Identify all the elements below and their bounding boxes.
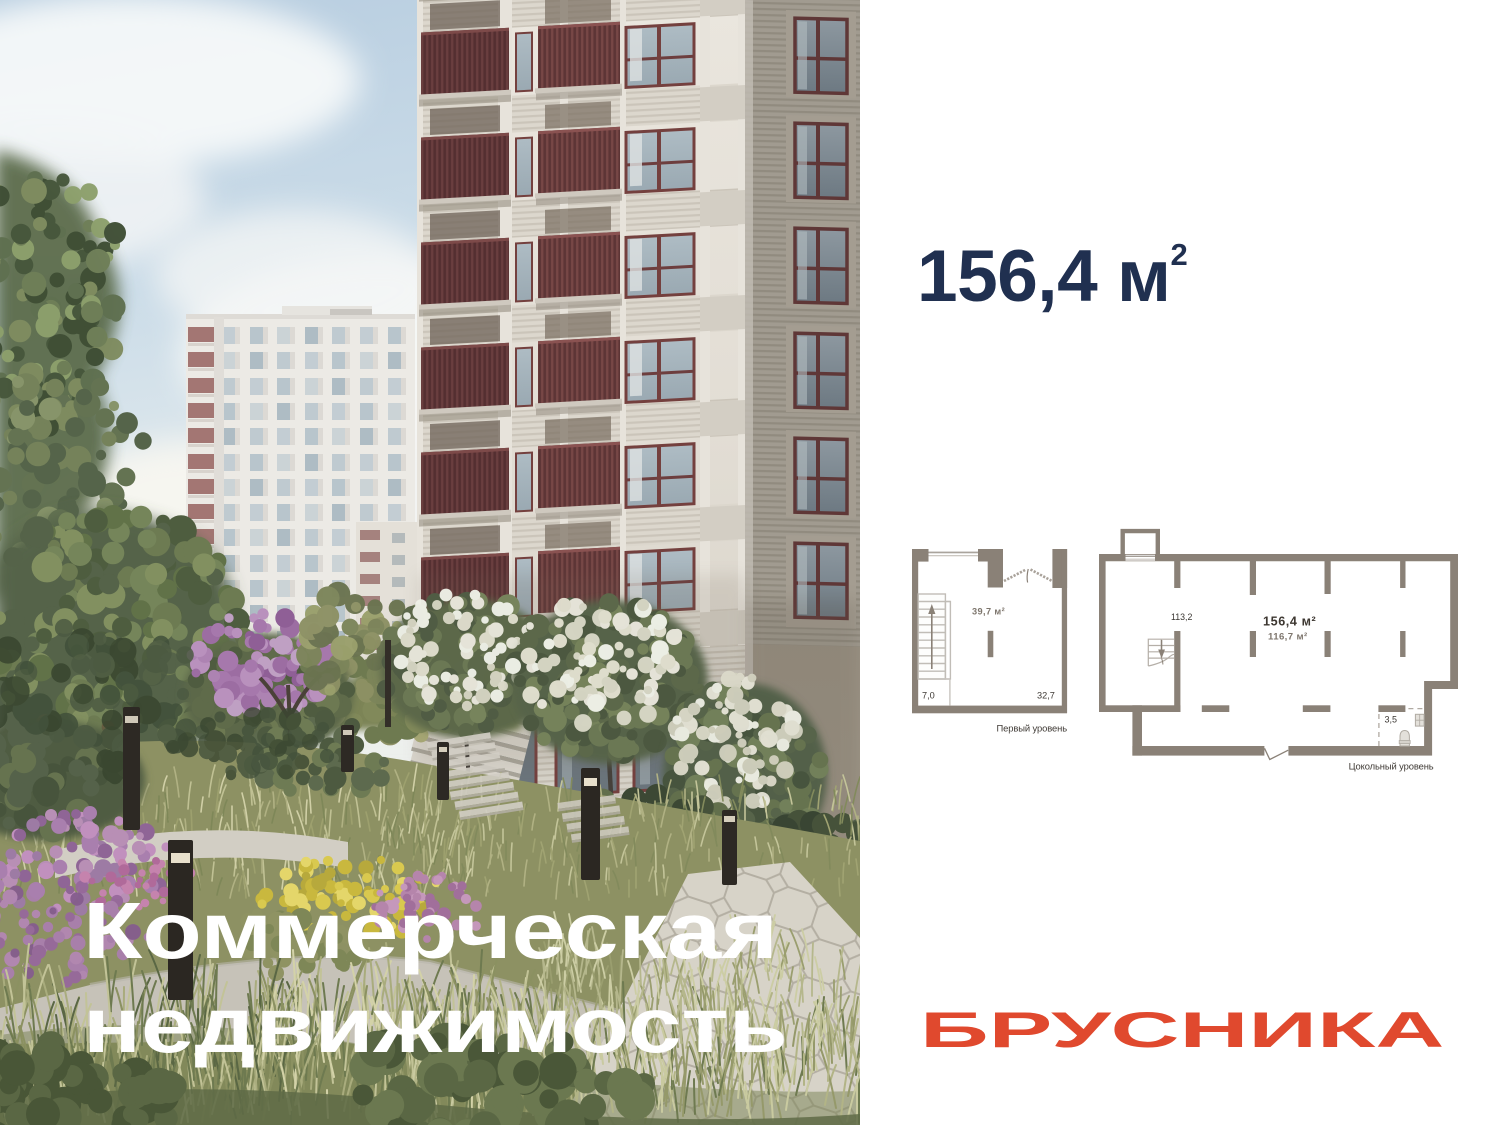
svg-text:Первый уровень: Первый уровень — [997, 723, 1068, 734]
svg-text:116,7 м²: 116,7 м² — [1268, 632, 1308, 643]
svg-text:Цокольный уровень: Цокольный уровень — [1349, 761, 1434, 772]
svg-text:32,7: 32,7 — [1037, 691, 1055, 701]
svg-text:113,2: 113,2 — [1171, 612, 1192, 622]
svg-text:3,5: 3,5 — [1385, 714, 1398, 724]
svg-text:7,0: 7,0 — [922, 691, 935, 701]
svg-text:156,4 м²: 156,4 м² — [1263, 615, 1316, 629]
svg-text:39,7 м²: 39,7 м² — [972, 607, 1005, 617]
